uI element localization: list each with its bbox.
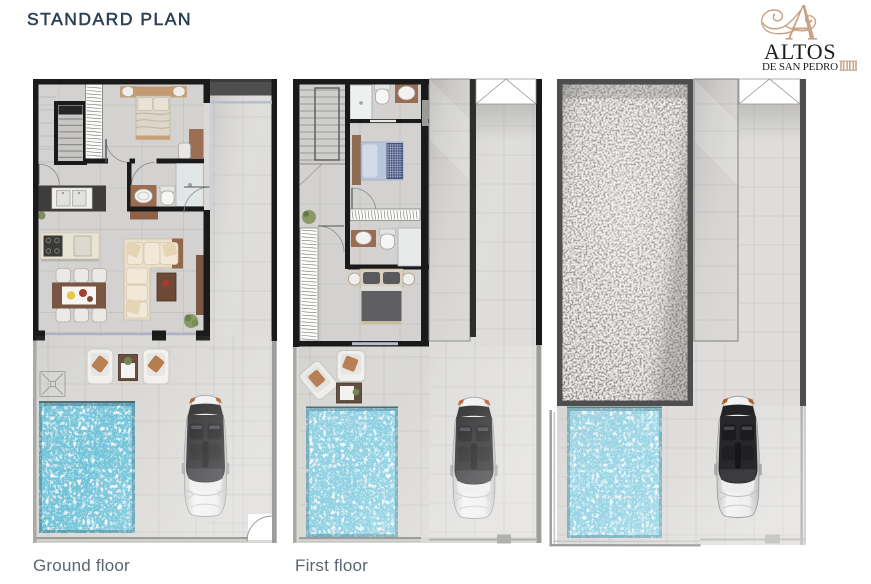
svg-text:DE SAN PEDRO: DE SAN PEDRO <box>762 61 838 73</box>
